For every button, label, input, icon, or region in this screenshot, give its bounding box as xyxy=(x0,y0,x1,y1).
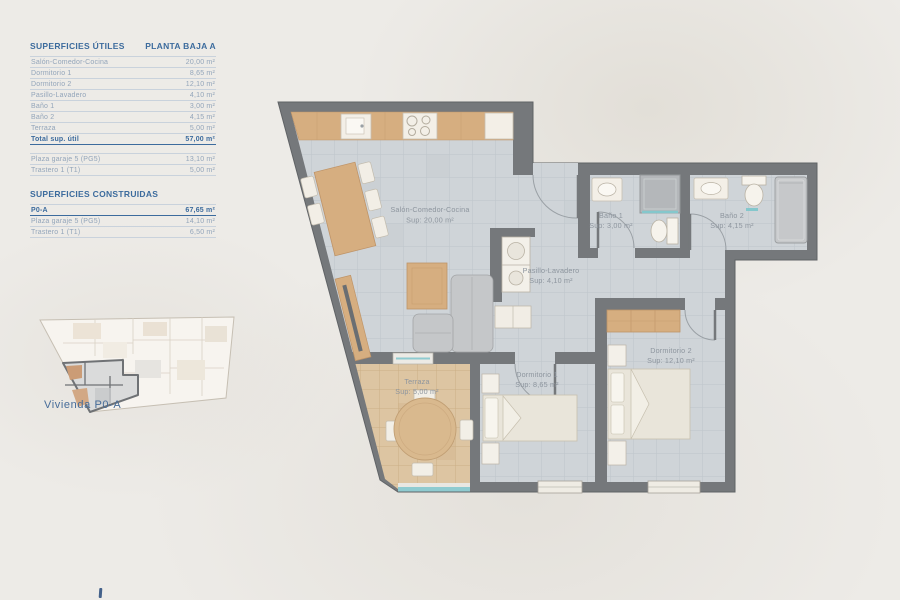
bath1-sink xyxy=(592,178,622,201)
entrance-opening xyxy=(533,163,578,175)
page-mark xyxy=(99,588,103,598)
bath2-door-opening xyxy=(690,250,725,260)
room-label-pasillo: Pasillo-Lavadero xyxy=(523,266,580,275)
row-value: 13,10 m² xyxy=(186,156,215,163)
nightstand xyxy=(482,443,499,464)
construidas-header: SUPERFICIES CONSTRUIDAS xyxy=(30,189,216,199)
glass-railing xyxy=(398,483,470,492)
utiles-table: Salón-Comedor-Cocina20,00 m² Dormitorio … xyxy=(30,56,216,145)
row-value: 57,00 m² xyxy=(185,136,215,143)
bedroom1-window xyxy=(538,481,582,493)
room-sup-bano2: Sup: 4,15 m² xyxy=(710,221,754,230)
table-row: Plaza garaje 5 (PG5)13,10 m² xyxy=(30,154,216,165)
row-label: Trastero 1 (T1) xyxy=(31,167,80,174)
wardrobe xyxy=(607,310,680,332)
table-row: Dormitorio 212,10 m² xyxy=(30,79,216,90)
table-row: Salón-Comedor-Cocina20,00 m² xyxy=(30,57,216,68)
construidas-table: P0-A67,65 m² Plaza garaje 5 (PG5)14,10 m… xyxy=(30,204,216,238)
floor-plan-drawing: Salón-Comedor-Cocina Sup: 20,00 m² Baño … xyxy=(265,85,825,525)
table-row: Dormitorio 18,65 m² xyxy=(30,68,216,79)
room-label-dorm1: Dormitorio 1 xyxy=(516,370,558,379)
row-label: Baño 1 xyxy=(31,103,54,110)
floor-plan: Salón-Comedor-Cocina Sup: 20,00 m² Baño … xyxy=(265,85,825,525)
row-value: 67,65 m² xyxy=(185,207,215,214)
room-sup-salon: Sup: 20,00 m² xyxy=(406,216,454,225)
table-row: Pasillo-Lavadero4,10 m² xyxy=(30,90,216,101)
row-label: Total sup. útil xyxy=(31,136,79,143)
cooktop xyxy=(403,113,437,139)
bath2-sink xyxy=(694,178,728,199)
hall-cabinet xyxy=(495,306,531,328)
utiles-header: SUPERFICIES ÚTILES PLANTA BAJA A xyxy=(30,41,216,51)
table-row: Trastero 1 (T1)5,00 m² xyxy=(30,165,216,176)
table-row: Plaza garaje 5 (PG5)14,10 m² xyxy=(30,216,216,227)
row-value: 4,10 m² xyxy=(190,92,215,99)
room-label-bano1: Baño 1 xyxy=(599,211,623,220)
shower-2 xyxy=(775,177,807,243)
fridge xyxy=(485,113,513,139)
row-value: 5,00 m² xyxy=(190,167,215,174)
kitchen-counter xyxy=(291,112,513,140)
bed-single xyxy=(483,395,577,441)
utiles-title: SUPERFICIES ÚTILES xyxy=(30,41,125,51)
towel-accent xyxy=(746,208,758,211)
row-label: Terraza xyxy=(31,125,56,132)
table-row: Baño 13,00 m² xyxy=(30,101,216,112)
nightstand xyxy=(608,441,626,465)
bedroom2-window xyxy=(648,481,700,493)
room-sup-bano1: Sup: 3,00 m² xyxy=(589,221,633,230)
row-label: Salón-Comedor-Cocina xyxy=(31,59,108,66)
row-label: Baño 2 xyxy=(31,114,54,121)
room-sup-dorm1: Sup: 8,65 m² xyxy=(515,380,559,389)
construidas-title: SUPERFICIES CONSTRUIDAS xyxy=(30,189,158,199)
kitchen-sink xyxy=(341,114,371,139)
terrace-glass-door xyxy=(393,353,433,364)
terrace-chair xyxy=(460,420,473,440)
row-value: 8,65 m² xyxy=(190,70,215,77)
extras-table: Plaza garaje 5 (PG5)13,10 m² Trastero 1 … xyxy=(30,153,216,176)
table-row: P0-A67,65 m² xyxy=(30,205,216,216)
shower-1 xyxy=(640,175,680,213)
table-row: Baño 24,15 m² xyxy=(30,112,216,123)
unit-kitchen-accent xyxy=(66,365,82,380)
row-value: 6,50 m² xyxy=(190,229,215,236)
row-label: P0-A xyxy=(31,207,48,214)
room-label-dorm2: Dormitorio 2 xyxy=(650,346,692,355)
row-value: 20,00 m² xyxy=(186,59,215,66)
surface-table-panel: SUPERFICIES ÚTILES PLANTA BAJA A Salón-C… xyxy=(30,41,216,238)
room-label-bano2: Baño 2 xyxy=(720,211,744,220)
room-label-salon: Salón-Comedor-Cocina xyxy=(390,205,469,214)
table-row: Terraza5,00 m² xyxy=(30,123,216,134)
nightstand xyxy=(482,374,499,393)
total-row: Total sup. útil57,00 m² xyxy=(30,134,216,145)
table-row: Trastero 1 (T1)6,50 m² xyxy=(30,227,216,238)
room-sup-terraza: Sup: 5,00 m² xyxy=(395,387,439,396)
row-label: Trastero 1 (T1) xyxy=(31,229,80,236)
row-label: Dormitorio 1 xyxy=(31,70,72,77)
washer-dryer-column xyxy=(502,237,530,292)
terrace-chair xyxy=(412,463,433,476)
row-value: 12,10 m² xyxy=(186,81,215,88)
row-label: Plaza garaje 5 (PG5) xyxy=(31,218,100,225)
room-sup-pasillo: Sup: 4,10 m² xyxy=(529,276,573,285)
room-label-terraza: Terraza xyxy=(404,377,429,386)
mini-plan-caption: Vivienda P0-A xyxy=(44,399,121,411)
nightstand xyxy=(608,345,626,366)
row-value: 4,15 m² xyxy=(190,114,215,121)
row-value: 14,10 m² xyxy=(186,218,215,225)
row-label: Dormitorio 2 xyxy=(31,81,72,88)
row-label: Plaza garaje 5 (PG5) xyxy=(31,156,100,163)
row-value: 3,00 m² xyxy=(190,103,215,110)
bed-double xyxy=(608,369,690,439)
coffee-table xyxy=(407,263,447,309)
plan-name: PLANTA BAJA A xyxy=(145,41,216,51)
row-value: 5,00 m² xyxy=(190,125,215,132)
row-label: Pasillo-Lavadero xyxy=(31,92,86,99)
room-sup-dorm2: Sup: 12,10 m² xyxy=(647,356,695,365)
